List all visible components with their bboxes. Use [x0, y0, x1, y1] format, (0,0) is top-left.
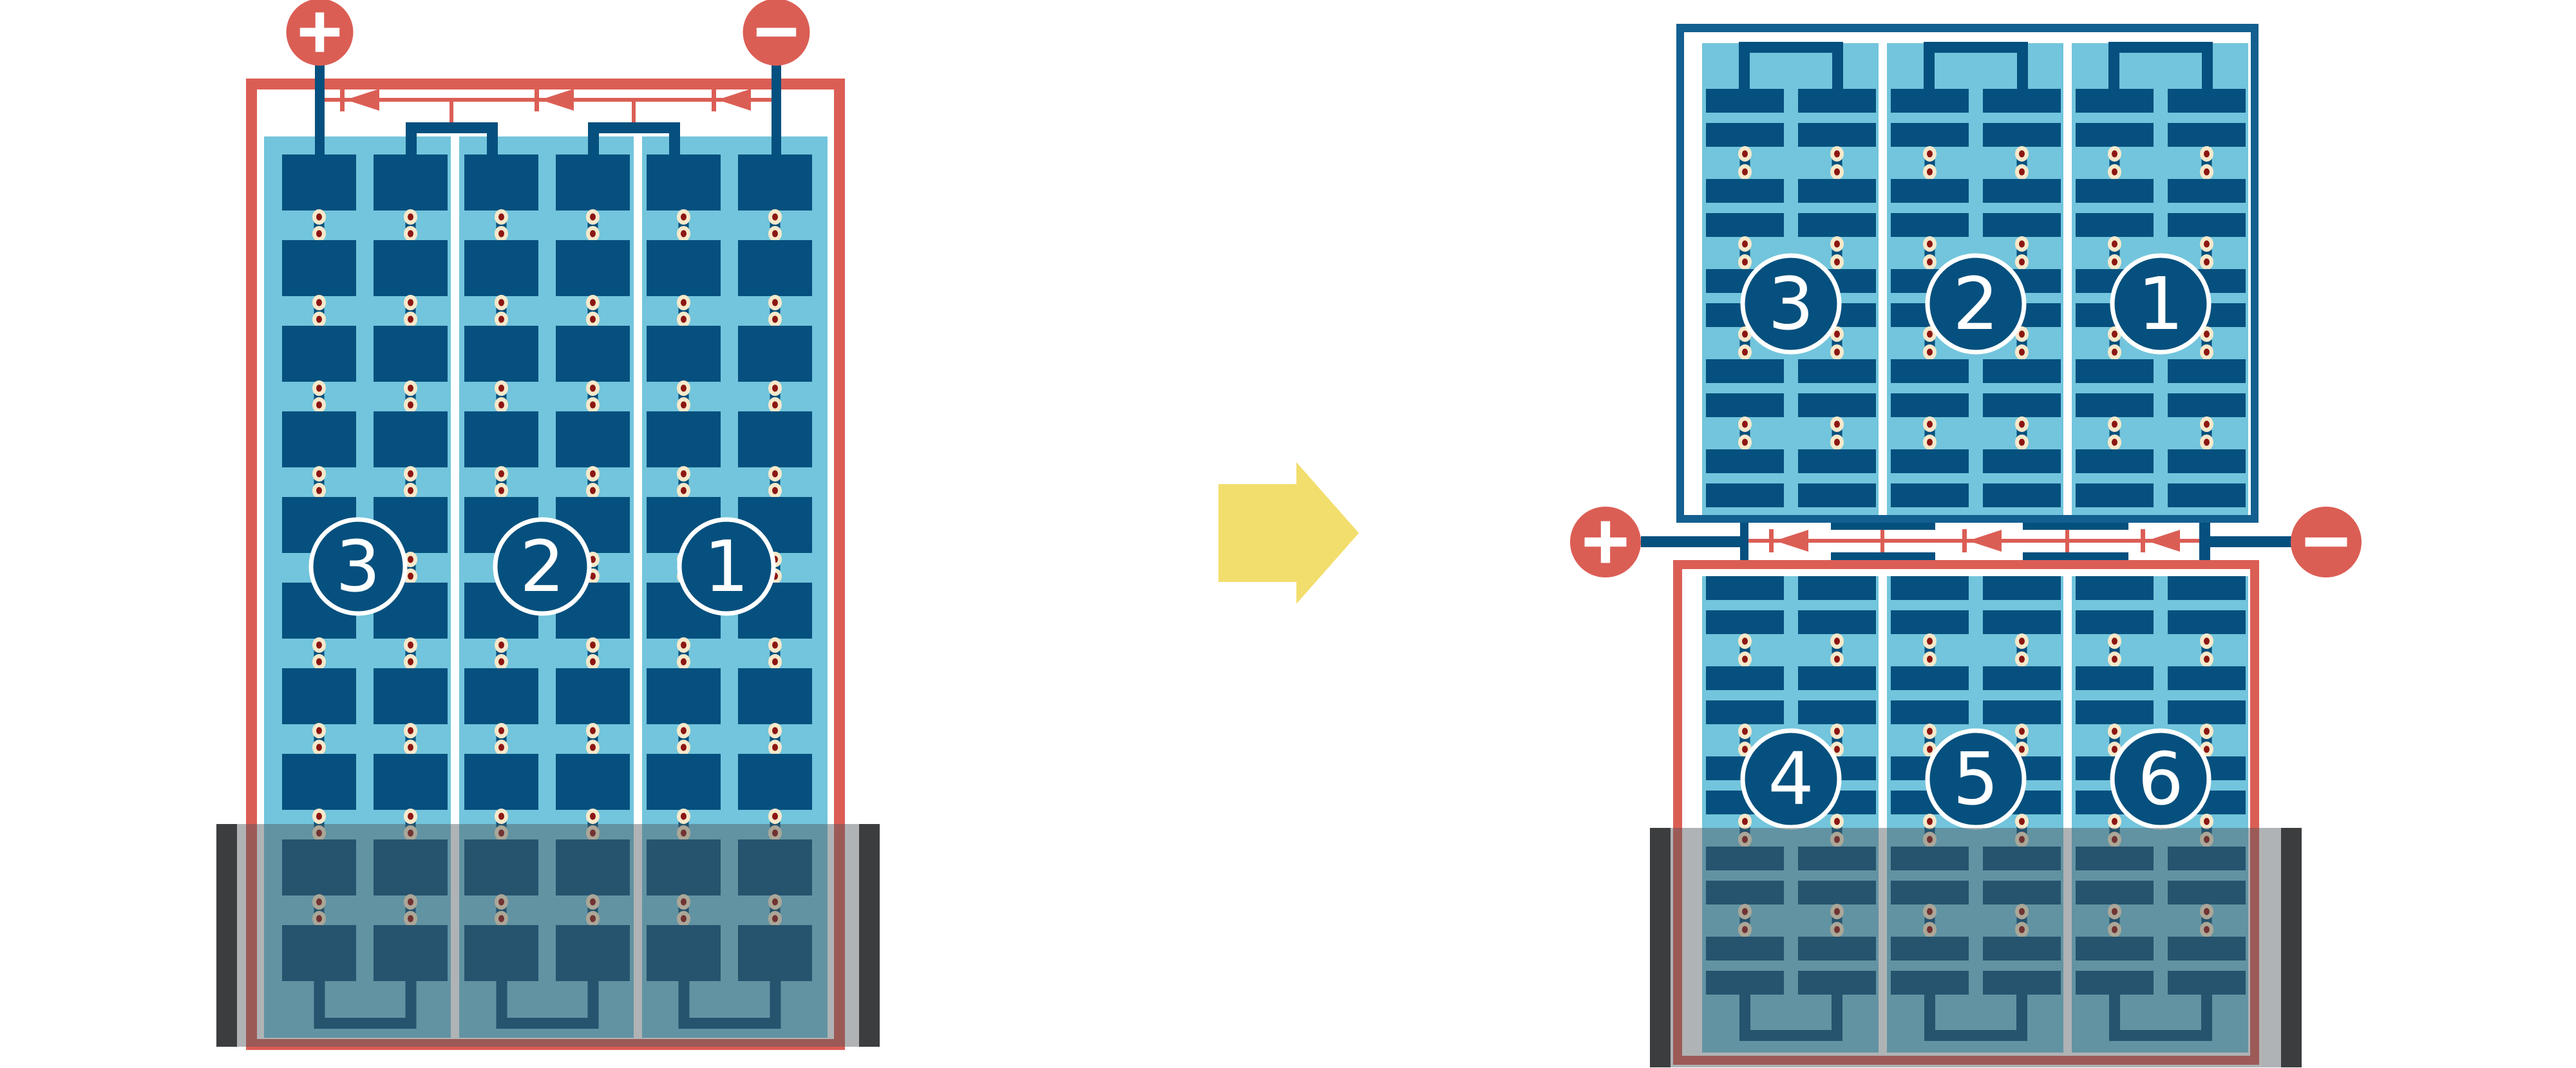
solar-cell [464, 155, 538, 211]
joint-core [316, 385, 322, 392]
half-cell [2076, 700, 2154, 724]
diode-arrow [540, 89, 574, 111]
solder-joint [586, 295, 600, 327]
bus-stub-bottom [2023, 552, 2128, 560]
joint-core [2112, 638, 2117, 645]
string-label-circle: 1 [679, 520, 773, 614]
half-cell [1706, 483, 1784, 507]
joint-core [590, 659, 596, 666]
solder-joint [1830, 633, 1844, 667]
string-label-circle: 5 [1927, 731, 2024, 827]
solar-cell [464, 411, 538, 467]
joint-core [498, 727, 504, 735]
half-cell [2168, 610, 2246, 634]
half-cell [1891, 123, 1969, 147]
solder-joint [404, 637, 417, 670]
half-cell [2076, 576, 2154, 600]
jumper-leg [1832, 53, 1843, 89]
joint-core [2019, 259, 2025, 266]
solder-joint [768, 723, 782, 755]
joint-core [316, 230, 322, 238]
joint-core [1927, 638, 1933, 645]
half-cell [1891, 610, 1969, 634]
joint-core [2204, 331, 2210, 338]
string-label-circle: 3 [1743, 256, 1839, 352]
positive-lead [1641, 536, 1748, 547]
solder-joint [495, 723, 508, 755]
diode-arrow [2146, 530, 2180, 552]
joint-core [681, 744, 687, 751]
half-cell [2168, 123, 2246, 147]
solder-joint [586, 209, 600, 241]
half-cell [1891, 576, 1969, 600]
joint-core [2204, 349, 2210, 356]
solar-cell [738, 326, 812, 382]
string-number: 2 [520, 525, 565, 608]
jumper-bar [2108, 42, 2213, 53]
half-cell [2168, 483, 2246, 507]
bypass-diode-icon [1769, 529, 1808, 552]
solder-joint [404, 380, 417, 413]
solder-joint [677, 723, 690, 755]
jumper-leg [1739, 53, 1750, 89]
solar-cell [647, 155, 721, 211]
half-cell [2076, 179, 2154, 203]
diagram-canvas: 321321456 [0, 0, 2576, 1068]
string-gap [2063, 43, 2072, 515]
joint-core [408, 316, 413, 323]
joint-core [1834, 638, 1840, 645]
joint-core [590, 299, 596, 306]
solder-joint [586, 637, 600, 670]
joint-core [316, 659, 322, 666]
solder-joint [2200, 417, 2213, 450]
string-number: 6 [2137, 737, 2184, 821]
half-cell [1798, 123, 1876, 147]
half-cell [1798, 666, 1876, 690]
half-cell [1706, 449, 1784, 473]
right-modules-after: 321456 [1570, 24, 2362, 1067]
solar-cell [282, 155, 356, 211]
diode-cathode-bar [340, 88, 345, 111]
shade-tint [216, 824, 880, 1047]
half-cell [1891, 179, 1969, 203]
half-cell [1706, 179, 1784, 203]
solar-cell [374, 411, 448, 467]
joint-core [772, 402, 778, 409]
half-cell [1891, 666, 1969, 690]
half-cell [2076, 213, 2154, 237]
half-cell [1983, 393, 2061, 417]
jumper-leg [669, 133, 680, 155]
joint-core [681, 299, 687, 306]
frame-top [1673, 560, 2259, 569]
solar-cell [282, 326, 356, 382]
joint-core [590, 316, 596, 323]
joint-core [2112, 349, 2117, 356]
solder-joint [1830, 236, 1844, 270]
solar-cell [738, 754, 812, 810]
junction-tick [2065, 530, 2069, 552]
solder-joint [2015, 417, 2029, 450]
solar-cell [282, 411, 356, 467]
bus-stub-bottom [1831, 552, 1935, 560]
joint-core [772, 230, 778, 238]
half-cell [1983, 359, 2061, 383]
string-label-circle: 3 [311, 520, 405, 614]
joint-core [498, 299, 504, 306]
joint-core [408, 471, 413, 478]
solar-cell [556, 668, 630, 724]
bypass-diode-icon [340, 88, 379, 111]
joint-core [590, 230, 596, 238]
joint-core [1927, 349, 1933, 356]
string-number: 4 [1768, 737, 1814, 821]
joint-core [498, 316, 504, 323]
joint-core [408, 402, 413, 409]
joint-core [2204, 169, 2210, 176]
jumper-leg [588, 133, 599, 155]
solder-joint [495, 637, 508, 670]
diode-cathode-bar [712, 88, 716, 111]
joint-core [1927, 439, 1933, 446]
solder-joint [312, 723, 326, 755]
solder-joint [2200, 236, 2213, 270]
joint-core [498, 230, 504, 238]
half-cell [1706, 576, 1784, 600]
joint-core [1927, 421, 1933, 428]
joint-core [2112, 746, 2117, 753]
bus-stub-right [2199, 523, 2210, 560]
solar-cell [374, 754, 448, 810]
bypass-diode-icon [535, 88, 574, 111]
half-cell [1983, 213, 2061, 237]
half-cell [1798, 213, 1876, 237]
joint-core [772, 385, 778, 392]
joint-core [772, 214, 778, 221]
joint-core [1834, 169, 1840, 176]
solar-cell [374, 668, 448, 724]
joint-core [2019, 439, 2025, 446]
solder-joint [1738, 417, 1752, 450]
joint-core [772, 813, 778, 820]
diode-cathode-bar [2141, 529, 2145, 552]
jumper-leg [2202, 53, 2213, 89]
joint-core [408, 727, 413, 735]
solder-joint [1738, 633, 1752, 667]
joint-core [590, 471, 596, 478]
joint-core [2204, 241, 2210, 248]
half-cell [1798, 179, 1876, 203]
frame-left [1676, 24, 1684, 523]
half-cell [2168, 576, 2246, 600]
half-cell [1706, 666, 1784, 690]
joint-core [772, 316, 778, 323]
string-label-circle: 2 [1927, 256, 2024, 352]
solar-cell [374, 240, 448, 296]
half-cell [1983, 89, 2061, 113]
bypass-diode-icon [712, 88, 751, 111]
joint-core [316, 744, 322, 751]
joint-core [2204, 746, 2210, 753]
joint-core [1742, 169, 1748, 176]
solar-cell [556, 411, 630, 467]
solder-joint [2015, 146, 2029, 180]
joint-core [590, 385, 596, 392]
joint-core [408, 813, 413, 820]
bypass-diode-line [320, 88, 776, 124]
solder-joint [1830, 146, 1844, 180]
joint-core [1834, 151, 1840, 158]
negative-lead [2210, 536, 2293, 547]
plus-sign-bar-vertical [316, 12, 325, 52]
solder-joint [495, 466, 508, 498]
joint-core [2019, 151, 2025, 158]
string-label-circle: 4 [1743, 731, 1839, 827]
solder-joint [495, 295, 508, 327]
solder-joint [586, 723, 600, 755]
joint-core [2204, 638, 2210, 645]
solder-joint [677, 209, 690, 241]
joint-core [2112, 439, 2117, 446]
joint-core [1834, 746, 1840, 753]
joint-core [1834, 241, 1840, 248]
solar-cell [282, 754, 356, 810]
bypass-diode-icon [2141, 529, 2180, 552]
solder-joint [586, 466, 600, 498]
half-cell [1983, 179, 2061, 203]
joint-core [498, 642, 504, 649]
joint-core [681, 214, 687, 221]
half-cell [1706, 213, 1784, 237]
solder-joint [768, 209, 782, 241]
bus-stub-top [1831, 523, 1935, 530]
joint-core [681, 385, 687, 392]
solder-joint [1923, 146, 1937, 180]
half-cell [1983, 483, 2061, 507]
joint-core [408, 642, 413, 649]
joint-core [2204, 151, 2210, 158]
solder-joint [312, 295, 326, 327]
solder-joint [586, 380, 600, 413]
shade-edge-bar-right [2281, 828, 2302, 1067]
half-cell [1706, 700, 1784, 724]
joint-core [1834, 656, 1840, 663]
solar-cell [374, 326, 448, 382]
negative-terminal-icon [743, 0, 810, 66]
half-cell [1891, 213, 1969, 237]
joint-core [2112, 818, 2117, 825]
plus-sign-bar-vertical [1601, 521, 1610, 563]
joint-core [1742, 439, 1748, 446]
half-cell [2168, 179, 2246, 203]
solar-cell [647, 326, 721, 382]
half-cell [1706, 393, 1784, 417]
half-cell [1798, 393, 1876, 417]
joint-core [498, 402, 504, 409]
joint-core [590, 214, 596, 221]
joint-core [1834, 259, 1840, 266]
joint-core [498, 744, 504, 751]
half-cell [2168, 700, 2246, 724]
half-cell [1983, 610, 2061, 634]
half-cell [1798, 483, 1876, 507]
solder-joint [2200, 146, 2213, 180]
joint-core [2112, 169, 2117, 176]
solder-joint [1923, 633, 1937, 667]
string-number: 1 [2137, 262, 2184, 346]
joint-core [590, 642, 596, 649]
solder-joint [2015, 633, 2029, 667]
string-number: 3 [336, 525, 381, 608]
joint-core [772, 659, 778, 666]
joint-core [681, 659, 687, 666]
frame-bottom [1676, 515, 2259, 523]
solar-cell [647, 411, 721, 467]
jumper-leg [487, 133, 498, 155]
solar-cell [464, 668, 538, 724]
half-cell [2076, 393, 2154, 417]
string-number: 2 [1953, 262, 1999, 346]
joint-core [590, 813, 596, 820]
joint-core [2112, 241, 2117, 248]
diode-arrow [346, 89, 379, 111]
half-cell [1891, 89, 1969, 113]
junction-tick [450, 100, 453, 124]
jumper-bar [588, 122, 680, 133]
half-cell [1798, 359, 1876, 383]
joint-core [2112, 151, 2117, 158]
half-cell [1983, 449, 2061, 473]
half-cell [2168, 213, 2246, 237]
joint-core [1927, 259, 1933, 266]
joint-core [772, 299, 778, 306]
half-cell [2168, 359, 2246, 383]
solar-cell [374, 155, 448, 211]
joint-core [1742, 331, 1748, 338]
jumper-leg [1924, 53, 1935, 89]
jumper-bar [1739, 42, 1843, 53]
joint-core [1742, 421, 1748, 428]
solar-cell [464, 240, 538, 296]
joint-core [2204, 421, 2210, 428]
solder-joint [2200, 633, 2213, 667]
joint-core [1834, 728, 1840, 735]
joint-core [316, 402, 322, 409]
jumper-leg [2108, 53, 2119, 89]
joint-core [2019, 421, 2025, 428]
joint-core [681, 487, 687, 494]
joint-core [1834, 349, 1840, 356]
solar-cell [464, 326, 538, 382]
half-cell [1798, 576, 1876, 600]
joint-core [1834, 331, 1840, 338]
shade-edge-bar-left [216, 824, 237, 1047]
solar-cell [738, 668, 812, 724]
joint-core [772, 727, 778, 735]
solder-joint [677, 380, 690, 413]
joint-core [1742, 349, 1748, 356]
half-cell [1891, 359, 1969, 383]
arrow-head-icon [1296, 462, 1359, 604]
joint-core [2112, 259, 2117, 266]
frame-right [2251, 24, 2259, 523]
positive-terminal-icon [287, 0, 354, 66]
frame-top [1676, 24, 2259, 32]
joint-core [2019, 638, 2025, 645]
half-cell [1891, 393, 1969, 417]
joint-core [1742, 728, 1748, 735]
half-cell [1706, 610, 1784, 634]
solder-joint [312, 637, 326, 670]
half-cell [1983, 666, 2061, 690]
diode-arrow [717, 89, 751, 111]
solder-joint [1923, 236, 1937, 270]
diode-arrow [1775, 530, 1808, 552]
frame-top [246, 79, 845, 89]
solar-cell [464, 754, 538, 810]
half-cell [1798, 449, 1876, 473]
solder-joint [1923, 417, 1937, 450]
left-module-before: 321 [216, 0, 880, 1050]
joint-core [408, 744, 413, 751]
solder-joint [495, 380, 508, 413]
half-cell [1983, 123, 2061, 147]
joint-core [2019, 728, 2025, 735]
jumper-bar [1924, 42, 2028, 53]
joint-core [1927, 656, 1933, 663]
solder-joint [404, 209, 417, 241]
string-number: 1 [704, 525, 749, 608]
joint-core [1927, 818, 1933, 825]
joint-core [498, 471, 504, 478]
half-cell [1798, 610, 1876, 634]
joint-core [1834, 818, 1840, 825]
half-cell [1798, 700, 1876, 724]
diode-cathode-bar [535, 88, 539, 111]
joint-core [2204, 656, 2210, 663]
shade-overlay [216, 824, 880, 1047]
joint-core [590, 727, 596, 735]
junction-tick [1880, 530, 1884, 552]
solar-cell [556, 754, 630, 810]
solder-joint [2108, 417, 2121, 450]
negative-terminal-icon [2291, 507, 2362, 577]
bus-stub-top [2023, 523, 2128, 530]
joint-core [2204, 728, 2210, 735]
jumper-leg [2017, 53, 2028, 89]
string-number: 5 [1953, 737, 1999, 821]
joint-core [2204, 818, 2210, 825]
joint-core [2112, 728, 2117, 735]
solar-cell [282, 668, 356, 724]
top-module-after: 321 [1702, 42, 2248, 515]
half-cell [1891, 483, 1969, 507]
joint-core [1742, 656, 1748, 663]
solder-joint [677, 466, 690, 498]
joint-core [772, 642, 778, 649]
half-cell [1983, 576, 2061, 600]
solar-cell [282, 240, 356, 296]
solar-module-wiring-diagram: 321321456 [0, 0, 2576, 1068]
joint-core [590, 744, 596, 751]
solar-cell [738, 240, 812, 296]
solder-joint [2015, 236, 2029, 270]
negative-stem [772, 61, 781, 155]
joint-core [1742, 818, 1748, 825]
solder-joint [495, 209, 508, 241]
joint-core [2019, 746, 2025, 753]
